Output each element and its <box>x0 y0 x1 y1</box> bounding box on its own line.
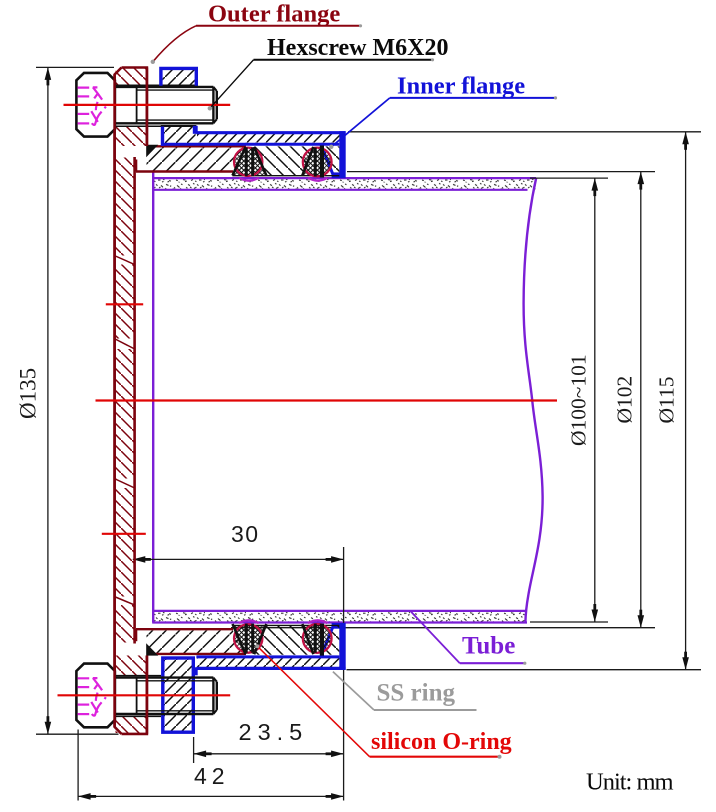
svg-text:42: 42 <box>194 763 230 789</box>
svg-text:Ø102: Ø102 <box>613 376 637 424</box>
svg-text:silicon O-ring: silicon O-ring <box>371 729 512 755</box>
svg-text:Ø115: Ø115 <box>655 377 679 424</box>
svg-text:30: 30 <box>231 521 260 547</box>
svg-text:23.5: 23.5 <box>239 719 309 745</box>
svg-text:SS ring: SS ring <box>377 680 456 707</box>
svg-text:Tube: Tube <box>462 633 515 660</box>
svg-text:Unit: mm: Unit: mm <box>586 769 674 796</box>
svg-text:Hexscrew M6X20: Hexscrew M6X20 <box>267 35 449 61</box>
svg-text:Ø100~101: Ø100~101 <box>567 354 591 446</box>
svg-text:Outer flange: Outer flange <box>208 1 340 28</box>
svg-text:Inner flange: Inner flange <box>397 73 525 100</box>
svg-text:Ø135: Ø135 <box>16 368 41 419</box>
